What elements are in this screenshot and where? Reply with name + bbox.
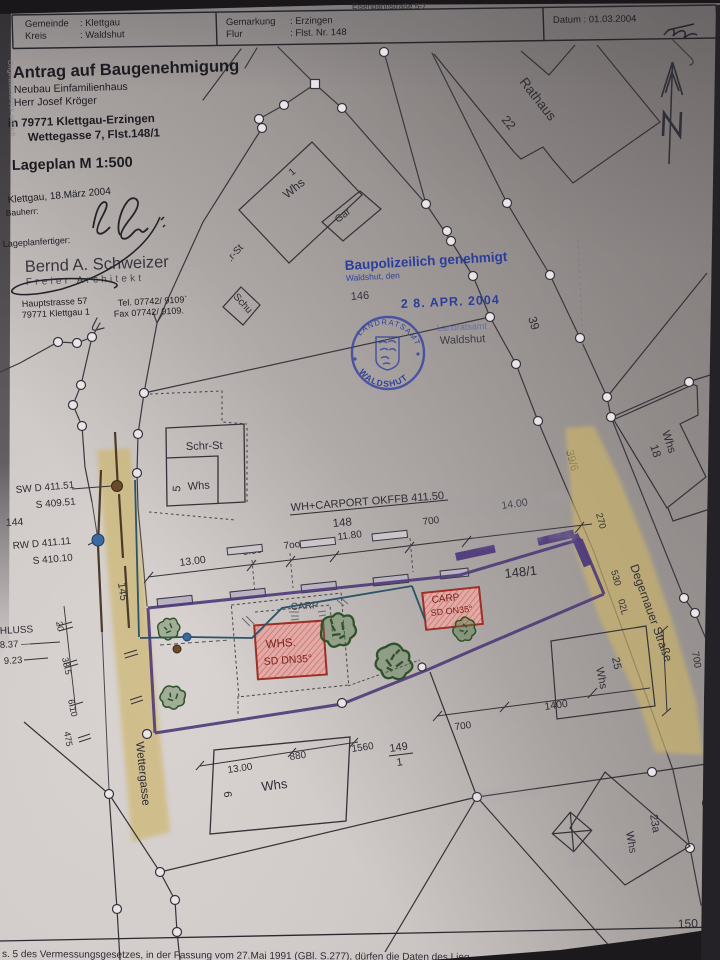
svg-text:9.23: 9.23: [4, 655, 23, 667]
svg-text:148: 148: [332, 516, 352, 530]
svg-text:Whs: Whs: [187, 479, 210, 493]
svg-text:Kreis: Kreis: [25, 31, 47, 42]
svg-text:Whs: Whs: [261, 776, 289, 794]
svg-text:: Erzingen: : Erzingen: [290, 15, 333, 27]
svg-text:9: 9: [222, 791, 235, 798]
svg-text:Herr Josef Kröger: Herr Josef Kröger: [14, 95, 98, 109]
svg-text:Gemarkung: Gemarkung: [226, 16, 276, 28]
svg-text:700: 700: [422, 515, 440, 528]
svg-text:146: 146: [350, 290, 369, 303]
svg-text:700: 700: [454, 720, 472, 733]
svg-text:Lageplan M 1:500: Lageplan M 1:500: [12, 155, 133, 174]
svg-text:7oo: 7oo: [283, 539, 301, 552]
svg-text:5: 5: [171, 485, 183, 492]
svg-text:1 : 1.00: 1 : 1.00: [569, 843, 640, 871]
svg-text:Gemeinde: Gemeinde: [25, 18, 69, 30]
svg-text:Waldshut: Waldshut: [440, 333, 486, 347]
svg-text:: Flst. Nr. 148: : Flst. Nr. 148: [290, 27, 347, 39]
svg-text:25: 25: [609, 656, 623, 670]
svg-text:: Waldshut: : Waldshut: [80, 29, 125, 41]
svg-text:Flur: Flur: [226, 29, 243, 40]
svg-text:8.37 —: 8.37 —: [0, 638, 31, 651]
svg-text:144: 144: [6, 516, 24, 529]
svg-text:HLUSS: HLUSS: [0, 624, 34, 637]
svg-text:Datum : 01.03.2004: Datum : 01.03.2004: [553, 14, 637, 26]
svg-text:149: 149: [389, 741, 409, 755]
svg-text:150: 150: [678, 916, 699, 931]
svg-text:: Klettgau: : Klettgau: [80, 17, 120, 29]
svg-text:Schr-St: Schr-St: [186, 440, 223, 453]
svg-text:WHS.: WHS.: [265, 637, 296, 651]
